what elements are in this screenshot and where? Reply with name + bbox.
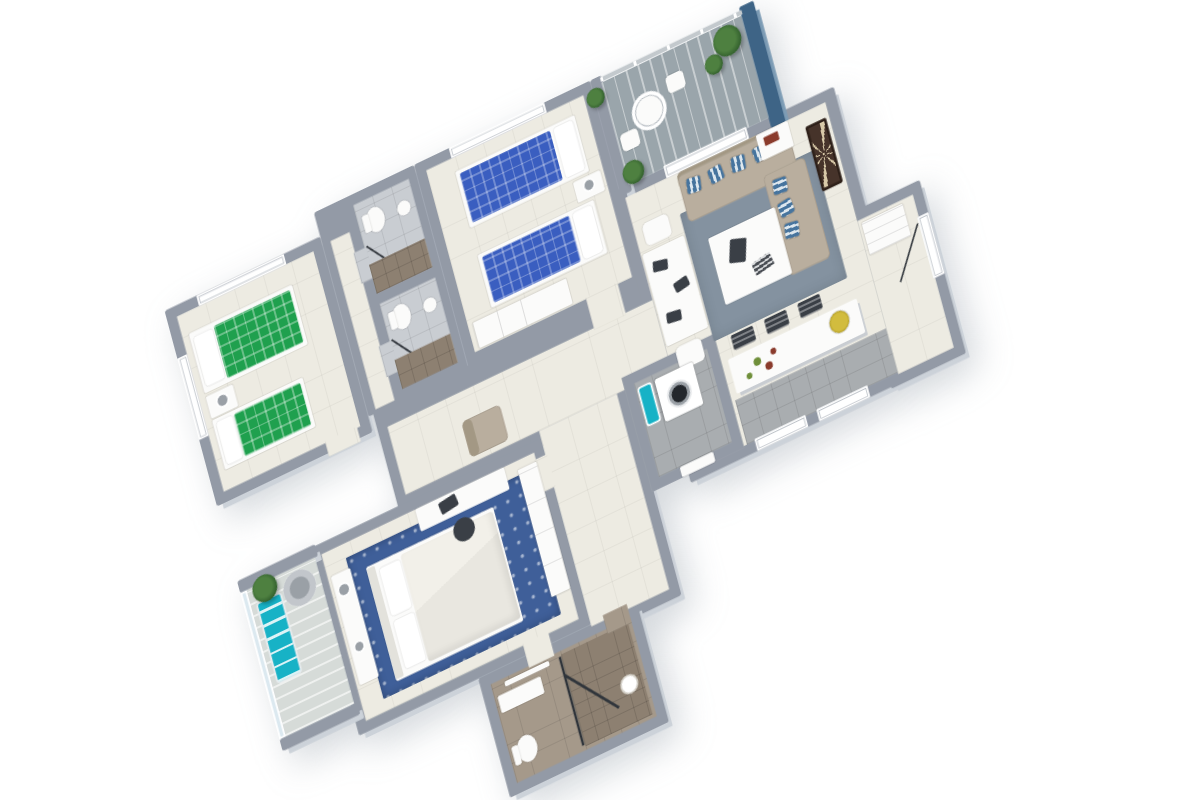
floorplan-render bbox=[0, 0, 1200, 800]
apartment-scene bbox=[160, 0, 1018, 800]
coffee-table-tablet bbox=[729, 237, 746, 263]
